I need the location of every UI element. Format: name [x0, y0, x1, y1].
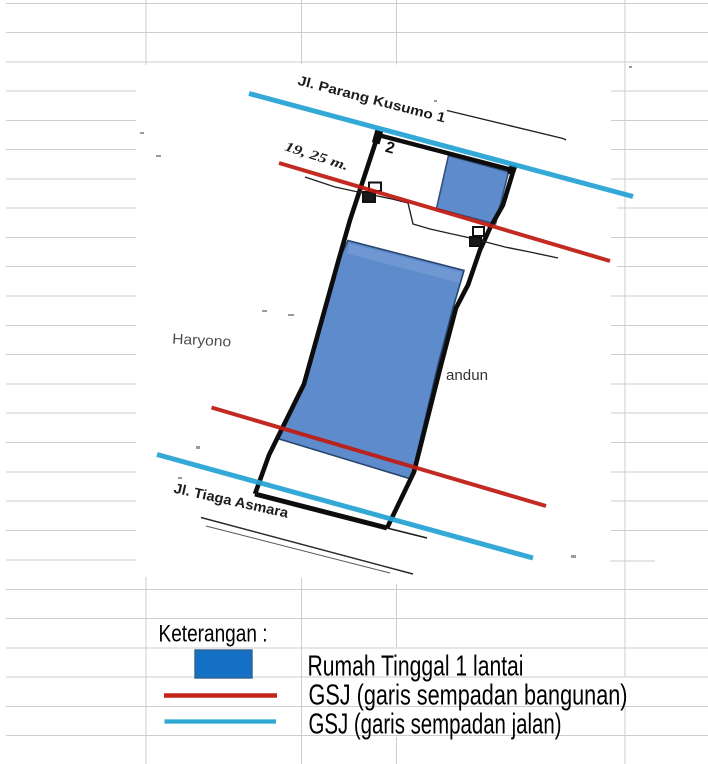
svg-text:GSJ (garis sempadan bangunan): GSJ (garis sempadan bangunan): [309, 680, 628, 712]
svg-text:Rumah Tinggal 1 lantai: Rumah Tinggal 1 lantai: [308, 651, 524, 683]
svg-text:Haryono: Haryono: [172, 332, 232, 351]
svg-text:GSJ (garis sempadan jalan): GSJ (garis sempadan jalan): [309, 709, 562, 741]
svg-text:andun: andun: [446, 368, 488, 384]
svg-text:Keterangan :: Keterangan :: [159, 621, 268, 648]
